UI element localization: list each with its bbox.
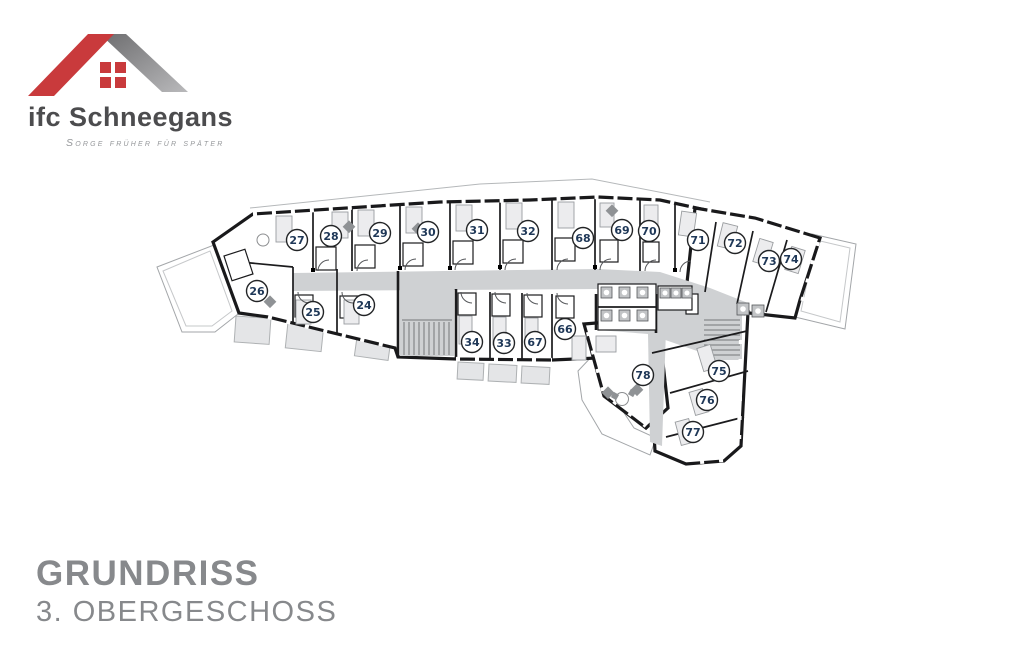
room-number-label: 68 <box>575 232 590 245</box>
room-number-label: 29 <box>372 227 387 240</box>
room-number-label: 66 <box>557 323 573 336</box>
room-number-label: 74 <box>783 253 799 266</box>
room-number-label: 71 <box>690 234 705 247</box>
room-number-label: 78 <box>635 369 650 382</box>
room-number-label: 76 <box>699 394 715 407</box>
room-number-label: 31 <box>469 224 484 237</box>
page: ifc Schneegans Sorge früher für später <box>0 0 1024 658</box>
room-number-label: 27 <box>289 234 304 247</box>
room-number-label: 30 <box>420 226 436 239</box>
room-number-label: 67 <box>527 336 542 349</box>
room-number-label: 70 <box>641 225 657 238</box>
room-number-label: 75 <box>711 365 726 378</box>
room-number-label: 77 <box>685 426 700 439</box>
room-number-label: 69 <box>614 224 629 237</box>
room-number-label: 72 <box>727 237 742 250</box>
room-number-label: 32 <box>520 225 535 238</box>
page-subtitle: 3. OBERGESCHOSS <box>36 596 337 629</box>
drawing-title: GRUNDRISS 3. OBERGESCHOSS <box>36 556 337 629</box>
room-number-label: 26 <box>249 285 265 298</box>
room-number-label: 28 <box>323 230 338 243</box>
room-number-label: 24 <box>356 299 372 312</box>
room-number-label: 73 <box>761 255 776 268</box>
room-number-label: 33 <box>496 337 511 350</box>
page-title: GRUNDRISS <box>36 556 337 593</box>
room-number-label: 25 <box>305 306 320 319</box>
room-number-label: 34 <box>464 336 480 349</box>
